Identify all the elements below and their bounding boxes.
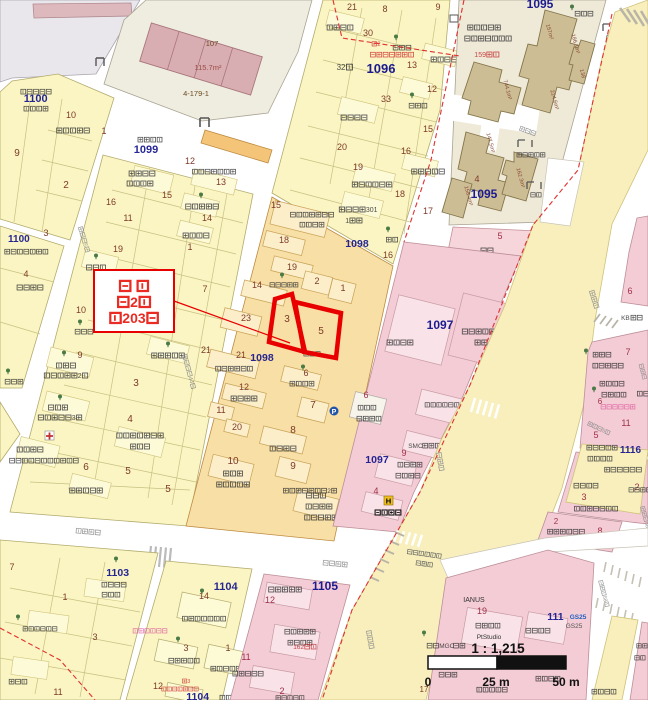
svg-text:2: 2 — [634, 482, 639, 492]
svg-text:1: 1 — [62, 592, 67, 602]
svg-text:2: 2 — [314, 276, 319, 286]
svg-text:4: 4 — [474, 174, 479, 184]
svg-text:11: 11 — [621, 418, 630, 428]
svg-text:8: 8 — [382, 4, 387, 14]
svg-text:14: 14 — [252, 280, 262, 290]
svg-text:5: 5 — [497, 231, 502, 241]
svg-text:1: 1 — [345, 218, 349, 225]
svg-text:20: 20 — [337, 142, 347, 152]
svg-text:1104: 1104 — [214, 581, 239, 593]
svg-text:159: 159 — [474, 52, 486, 59]
svg-text:1104: 1104 — [186, 691, 209, 700]
svg-text:12: 12 — [185, 156, 195, 166]
svg-text:4: 4 — [127, 414, 133, 425]
svg-text:4: 4 — [23, 269, 28, 279]
svg-text:107: 107 — [206, 39, 219, 48]
svg-text:1: 1 — [340, 283, 345, 293]
svg-text:1098: 1098 — [250, 352, 274, 364]
svg-text:20: 20 — [232, 422, 242, 432]
svg-text:30: 30 — [363, 28, 373, 38]
svg-text:16: 16 — [401, 146, 411, 156]
svg-text:11: 11 — [123, 213, 132, 223]
svg-text:1095: 1095 — [527, 0, 554, 11]
svg-text:6: 6 — [83, 462, 89, 473]
svg-text:203: 203 — [122, 310, 146, 326]
svg-text:12: 12 — [427, 84, 437, 94]
svg-text:301: 301 — [366, 207, 378, 214]
svg-text:5: 5 — [318, 326, 324, 337]
svg-text:3: 3 — [43, 228, 48, 238]
svg-text:9: 9 — [435, 2, 440, 12]
svg-text:13: 13 — [216, 177, 226, 187]
svg-text:P: P — [332, 409, 337, 416]
svg-text:1100: 1100 — [8, 234, 30, 245]
svg-text:3: 3 — [72, 415, 76, 422]
svg-text:3: 3 — [183, 643, 188, 653]
svg-text:9: 9 — [14, 148, 20, 159]
svg-text:9: 9 — [401, 448, 406, 458]
svg-text:15: 15 — [162, 190, 172, 200]
svg-text:13: 13 — [407, 60, 417, 70]
svg-text:KB: KB — [621, 315, 630, 322]
svg-text:5: 5 — [165, 484, 171, 495]
svg-text:SMC: SMC — [408, 443, 423, 450]
svg-text:8: 8 — [290, 425, 296, 436]
svg-text:1095: 1095 — [471, 187, 498, 201]
svg-text:15: 15 — [423, 124, 433, 134]
svg-text:16: 16 — [106, 197, 116, 207]
svg-text:1: 1 — [101, 126, 106, 136]
svg-text:10: 10 — [66, 110, 76, 120]
svg-text:H: H — [386, 497, 391, 506]
svg-text:32: 32 — [337, 63, 346, 72]
svg-text:18: 18 — [395, 189, 405, 199]
svg-text:19: 19 — [113, 244, 123, 254]
svg-text:2: 2 — [78, 373, 82, 380]
svg-text:10: 10 — [76, 305, 86, 315]
svg-text:11: 11 — [241, 652, 250, 662]
svg-text:50 m: 50 m — [552, 675, 579, 689]
svg-text:14: 14 — [199, 591, 209, 601]
svg-text:9: 9 — [77, 350, 82, 360]
svg-text:12: 12 — [265, 595, 275, 605]
svg-text:11: 11 — [216, 405, 225, 415]
svg-text:115.7m²: 115.7m² — [195, 63, 222, 72]
svg-text:23: 23 — [241, 313, 251, 323]
svg-text:3: 3 — [92, 632, 97, 642]
svg-text:2: 2 — [130, 294, 138, 310]
svg-text:9: 9 — [290, 461, 296, 472]
svg-text:19: 19 — [287, 262, 297, 272]
svg-text:19: 19 — [477, 606, 487, 616]
svg-text:3: 3 — [284, 314, 290, 325]
svg-text:1116: 1116 — [620, 445, 642, 456]
svg-text:IANUS: IANUS — [463, 597, 485, 604]
svg-text:PtStudio: PtStudio — [477, 634, 502, 641]
svg-text:MGC: MGC — [439, 643, 454, 650]
svg-text:1 : 1,215: 1 : 1,215 — [471, 641, 525, 656]
svg-text:1096: 1096 — [367, 61, 396, 76]
svg-text:1097: 1097 — [427, 318, 454, 332]
svg-text:18: 18 — [279, 235, 289, 245]
svg-text:1097: 1097 — [365, 454, 389, 466]
svg-text:3: 3 — [581, 492, 586, 502]
svg-text:111: 111 — [547, 611, 564, 623]
svg-text:21: 21 — [236, 350, 246, 360]
svg-text:10: 10 — [227, 456, 239, 467]
svg-text:7: 7 — [9, 562, 14, 572]
svg-text:2: 2 — [63, 180, 69, 191]
svg-text:162: 162 — [293, 644, 304, 651]
svg-text:17: 17 — [423, 206, 433, 216]
svg-text:1: 1 — [225, 643, 230, 653]
svg-text:25 m: 25 m — [482, 675, 509, 689]
svg-text:11: 11 — [53, 687, 62, 697]
svg-text:6: 6 — [363, 390, 368, 400]
svg-text:7: 7 — [310, 400, 316, 411]
svg-text:2: 2 — [554, 517, 559, 526]
svg-text:GS25: GS25 — [570, 614, 587, 621]
svg-text:3: 3 — [133, 378, 139, 389]
svg-text:1100: 1100 — [24, 93, 48, 105]
svg-text:1103: 1103 — [106, 567, 129, 579]
svg-text:7: 7 — [202, 284, 207, 294]
svg-text:1: 1 — [187, 242, 192, 252]
svg-text:12: 12 — [239, 382, 249, 392]
svg-text:1105: 1105 — [312, 579, 338, 593]
svg-text:14: 14 — [202, 213, 212, 223]
svg-text:4-179-1: 4-179-1 — [183, 89, 209, 98]
svg-text:6: 6 — [627, 286, 632, 296]
svg-text:15: 15 — [271, 200, 281, 210]
svg-text:GS25: GS25 — [566, 623, 583, 630]
svg-text:7: 7 — [625, 347, 630, 357]
svg-text:5: 5 — [593, 430, 598, 440]
svg-text:1098: 1098 — [345, 238, 369, 250]
svg-text:16: 16 — [383, 250, 393, 260]
svg-text:2: 2 — [279, 686, 284, 696]
svg-text:33: 33 — [381, 94, 391, 104]
svg-text:4: 4 — [373, 486, 378, 496]
svg-text:5: 5 — [125, 466, 131, 477]
svg-text:0: 0 — [425, 675, 432, 689]
svg-text:1099: 1099 — [134, 144, 158, 156]
svg-text:6: 6 — [303, 368, 308, 378]
svg-text:21: 21 — [347, 2, 357, 12]
svg-text:3: 3 — [187, 679, 190, 685]
svg-text:2: 2 — [327, 488, 331, 495]
svg-text:19: 19 — [353, 162, 363, 172]
